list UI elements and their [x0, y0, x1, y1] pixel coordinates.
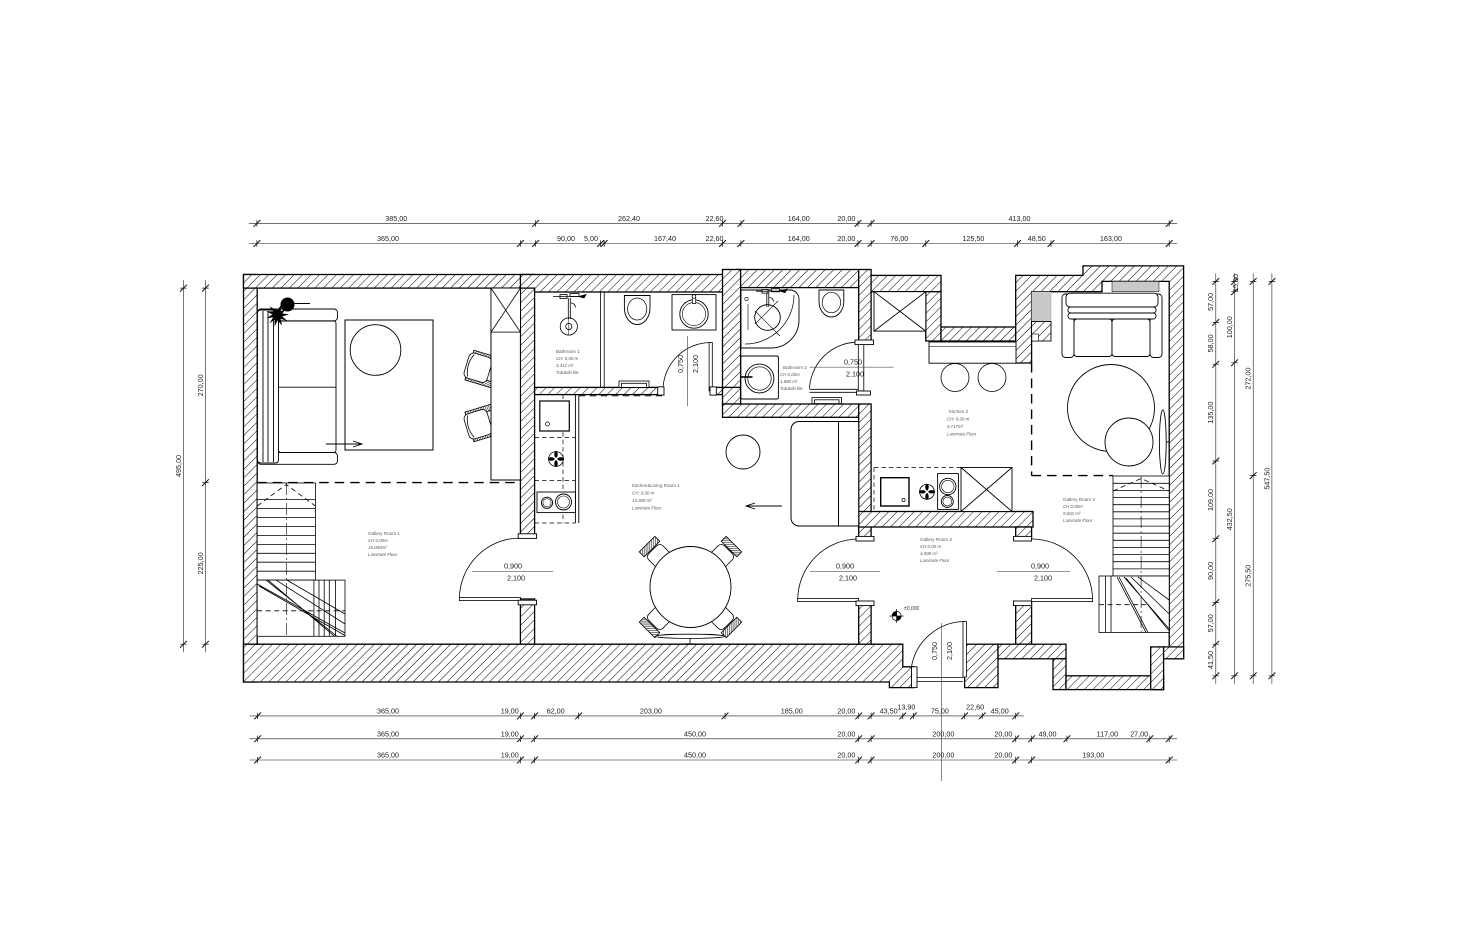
svg-text:20,00: 20,00	[994, 729, 1012, 738]
svg-text:20,00: 20,00	[837, 214, 855, 223]
svg-text:365,00: 365,00	[377, 751, 399, 760]
svg-text:Laminate Floor: Laminate Floor	[947, 432, 977, 437]
svg-text:Gallery Room 1: Gallery Room 1	[368, 531, 400, 536]
svg-text:75,00: 75,00	[931, 707, 949, 716]
svg-text:1,880 m²: 1,880 m²	[780, 379, 798, 384]
svg-text:200,00: 200,00	[932, 751, 954, 760]
svg-text:Laminate Floor: Laminate Floor	[1063, 518, 1093, 523]
svg-text:185,00: 185,00	[781, 707, 803, 716]
svg-text:22,60: 22,60	[706, 234, 724, 243]
svg-text:2,100: 2,100	[507, 574, 525, 583]
svg-text:Gallery Room 2: Gallery Room 2	[1063, 497, 1095, 502]
svg-text:167,40: 167,40	[654, 234, 676, 243]
svg-text:20,00: 20,00	[994, 751, 1012, 760]
svg-text:Kitchen 2: Kitchen 2	[949, 409, 969, 414]
svg-text:9,002 m²: 9,002 m²	[1063, 511, 1081, 516]
svg-text:109,00: 109,00	[1206, 489, 1215, 511]
svg-text:57,00: 57,00	[1206, 293, 1215, 311]
svg-text:5,717m²: 5,717m²	[947, 424, 964, 429]
svg-text:2,100: 2,100	[945, 642, 954, 660]
svg-text:15,308 m²: 15,308 m²	[632, 498, 652, 503]
svg-text:163,00: 163,00	[1100, 234, 1122, 243]
svg-text:4,008 m²: 4,008 m²	[920, 551, 938, 556]
svg-text:58,00: 58,00	[1206, 334, 1215, 352]
svg-text:365,00: 365,00	[377, 707, 399, 716]
svg-text:43,50: 43,50	[880, 707, 898, 716]
svg-text:±0,000: ±0,000	[904, 606, 919, 612]
svg-text:90,00: 90,00	[557, 234, 575, 243]
svg-text:Laminate Floor: Laminate Floor	[632, 506, 662, 511]
svg-text:125,50: 125,50	[962, 234, 984, 243]
svg-text:18,000m²: 18,000m²	[368, 545, 387, 550]
svg-text:20,00: 20,00	[837, 751, 855, 760]
svg-text:CH 0,00m: CH 0,00m	[368, 538, 388, 543]
svg-text:19,00: 19,00	[501, 751, 519, 760]
svg-text:CH: 0,00 m: CH: 0,00 m	[556, 356, 579, 361]
svg-text:200,00: 200,00	[932, 729, 954, 738]
svg-text:5,00: 5,00	[584, 234, 598, 243]
svg-text:20,00: 20,00	[837, 234, 855, 243]
svg-text:CH 0,00 m: CH 0,00 m	[920, 544, 941, 549]
svg-text:135,00: 135,00	[1206, 402, 1215, 424]
svg-text:272,00: 272,00	[1244, 368, 1253, 390]
svg-text:450,00: 450,00	[684, 729, 706, 738]
svg-text:164,00: 164,00	[788, 234, 810, 243]
svg-text:193,00: 193,00	[1082, 751, 1104, 760]
svg-text:15,00: 15,00	[1231, 274, 1240, 292]
svg-text:Gallery Room 3: Gallery Room 3	[920, 537, 952, 542]
svg-text:76,00: 76,00	[890, 234, 908, 243]
svg-text:20,00: 20,00	[837, 707, 855, 716]
svg-text:2,100: 2,100	[691, 355, 700, 373]
svg-text:62,00: 62,00	[547, 707, 565, 716]
svg-text:Laminate Floor: Laminate Floor	[368, 552, 398, 557]
svg-text:Bathroom 1: Bathroom 1	[556, 349, 580, 354]
svg-text:495,00: 495,00	[174, 455, 183, 477]
svg-text:2,100: 2,100	[839, 574, 857, 583]
svg-text:432,50: 432,50	[1225, 508, 1234, 530]
svg-text:385,00: 385,00	[385, 214, 407, 223]
svg-text:0,900: 0,900	[504, 562, 522, 571]
svg-text:22,60: 22,60	[966, 702, 984, 711]
svg-text:Laminate Floor: Laminate Floor	[920, 558, 950, 563]
svg-text:Kitchen&Living Room 1: Kitchen&Living Room 1	[632, 483, 680, 488]
svg-text:13,90: 13,90	[897, 702, 915, 711]
svg-text:0,900: 0,900	[1031, 562, 1049, 571]
svg-text:41,50: 41,50	[1206, 651, 1215, 669]
svg-text:CH: 0,00 m: CH: 0,00 m	[947, 417, 970, 422]
svg-text:19,00: 19,00	[501, 729, 519, 738]
svg-text:2,100: 2,100	[846, 370, 864, 379]
svg-text:164,00: 164,00	[788, 214, 810, 223]
svg-text:275,50: 275,50	[1244, 565, 1253, 587]
svg-text:365,00: 365,00	[377, 729, 399, 738]
svg-text:270,00: 270,00	[196, 374, 205, 396]
svg-text:Bathroom 2: Bathroom 2	[783, 365, 807, 370]
svg-text:22,60: 22,60	[706, 214, 724, 223]
svg-text:CH 0,00m: CH 0,00m	[1063, 504, 1083, 509]
svg-text:0,900: 0,900	[836, 562, 854, 571]
svg-text:19,00: 19,00	[501, 707, 519, 716]
svg-text:27,00: 27,00	[1130, 729, 1148, 738]
svg-text:20,00: 20,00	[837, 729, 855, 738]
svg-text:Tub&tile tile: Tub&tile tile	[556, 370, 579, 375]
svg-text:49,00: 49,00	[1039, 729, 1057, 738]
svg-text:203,00: 203,00	[640, 707, 662, 716]
svg-text:48,50: 48,50	[1028, 234, 1046, 243]
svg-text:90,00: 90,00	[1206, 562, 1215, 580]
svg-text:0,750: 0,750	[930, 642, 939, 660]
svg-text:Tub&tile tile: Tub&tile tile	[780, 386, 803, 391]
svg-text:365,00: 365,00	[377, 234, 399, 243]
svg-text:413,00: 413,00	[1009, 214, 1031, 223]
svg-text:262,40: 262,40	[618, 214, 640, 223]
svg-text:CH 0,00m: CH 0,00m	[780, 372, 800, 377]
svg-text:547,50: 547,50	[1262, 468, 1271, 490]
svg-text:225,00: 225,00	[196, 552, 205, 574]
svg-text:450,00: 450,00	[684, 751, 706, 760]
svg-text:0,750: 0,750	[844, 358, 862, 367]
svg-text:100,00: 100,00	[1225, 316, 1234, 338]
svg-text:117,00: 117,00	[1097, 729, 1118, 738]
svg-text:57,00: 57,00	[1206, 614, 1215, 632]
svg-text:3,412 m²: 3,412 m²	[556, 363, 574, 368]
svg-text:CH: 0,00 m: CH: 0,00 m	[632, 491, 655, 496]
svg-text:45,00: 45,00	[991, 707, 1009, 716]
svg-text:2,100: 2,100	[1034, 574, 1052, 583]
svg-text:0,750: 0,750	[676, 355, 685, 373]
